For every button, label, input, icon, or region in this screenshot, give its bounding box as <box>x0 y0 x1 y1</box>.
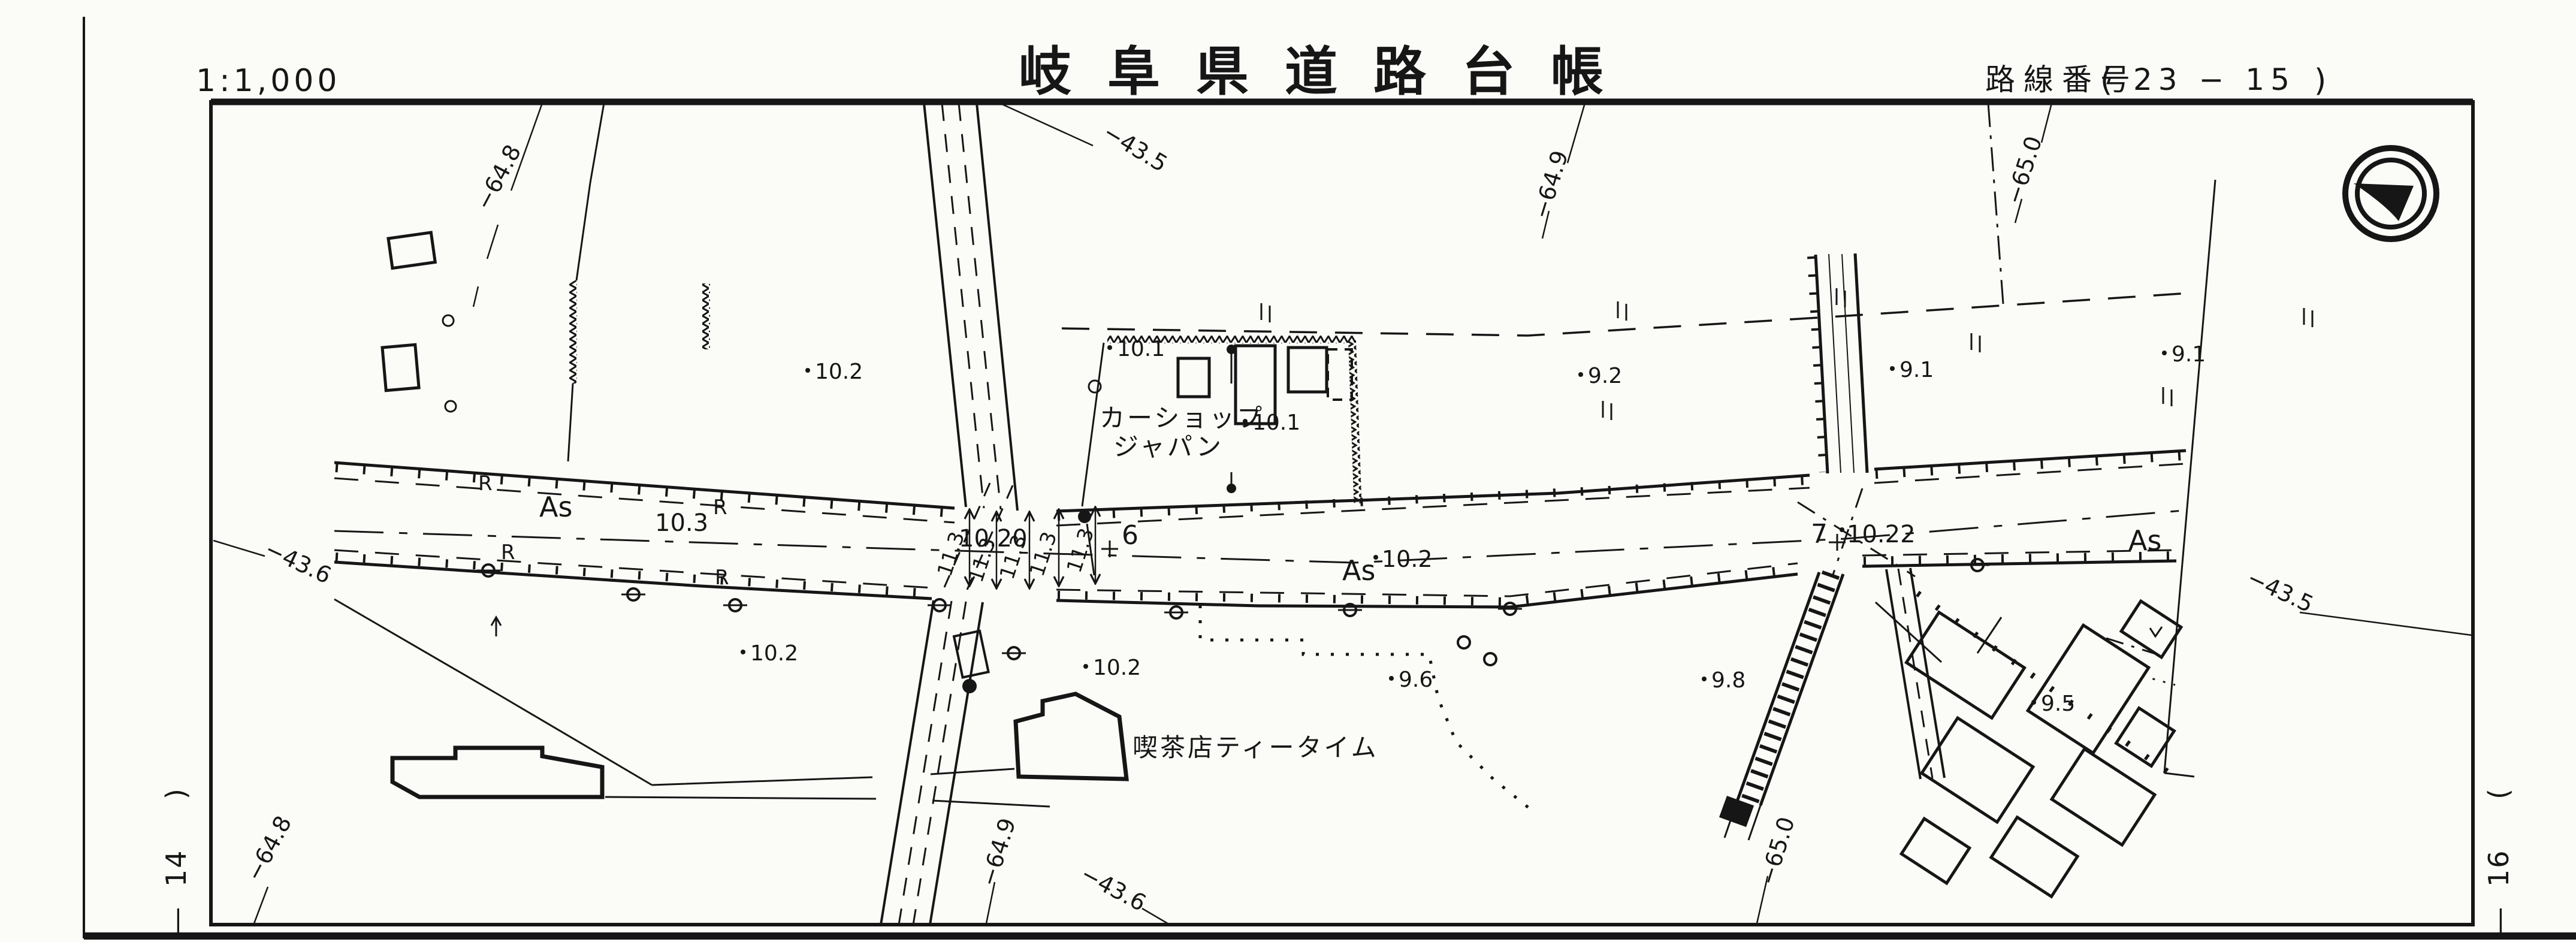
grid-label: −64.9 <box>1528 147 1574 222</box>
road-ledger-sheet: 1:1,000 岐阜県道路台帳 路線番号 ( 23 − 15 ) ― 14 ) … <box>0 0 2576 942</box>
place-labels: カーショップ ジャパン 喫茶店ティータイム <box>1100 403 1379 762</box>
utility-pole <box>1227 484 1236 493</box>
building <box>1901 819 1970 883</box>
grid-label: −43.5 <box>2243 564 2317 618</box>
edge-mark: R <box>713 496 727 520</box>
surface-label: As <box>2128 524 2161 557</box>
building <box>1906 612 2024 718</box>
well-symbol <box>1458 636 1470 648</box>
building <box>1991 817 2077 896</box>
building <box>1288 348 1327 392</box>
right-sheet-ref: ― 16 ( <box>2483 787 2515 936</box>
route-close-paren: ) <box>2314 63 2330 99</box>
road-symbols <box>476 510 1989 693</box>
building-dashed <box>1328 349 1352 400</box>
fence-line <box>1917 593 2169 773</box>
road-elevation: 10.2 <box>1382 546 1433 572</box>
grid-label: −43.6 <box>261 536 335 589</box>
car-shop-label-line1: カーショップ <box>1100 403 1264 433</box>
route-number-value: 23 − 15 <box>2133 62 2296 97</box>
header: 1:1,000 岐阜県道路台帳 路線番号 ( 23 − 15 ) <box>196 41 2330 102</box>
grid-label: −65.0 <box>2001 133 2047 207</box>
surface-label: As <box>539 491 572 523</box>
grid-label: −43.6 <box>1076 861 1150 917</box>
dash-dot-boundary <box>1988 103 2004 312</box>
sheet-bottom-band <box>84 932 2576 940</box>
coffee-shop-label: 喫茶店ティータイム <box>1133 733 1379 762</box>
road-elevation: 10.3 <box>655 509 708 537</box>
route-open-paren: ( <box>2100 63 2116 99</box>
grid-label: −64.8 <box>470 140 527 214</box>
station-number: 6 <box>1122 520 1138 551</box>
building <box>1922 718 2033 822</box>
fence-zigzag <box>569 280 577 384</box>
utility-pole <box>962 679 977 693</box>
spot-elevation: 10.2 <box>1093 656 1141 680</box>
left-structures <box>382 233 501 636</box>
sheet-frame <box>84 17 2576 940</box>
building <box>2052 749 2155 845</box>
station-number: 7 <box>1811 519 1828 549</box>
road-elevation: 10.20 <box>959 525 1028 552</box>
road-elevation: 10.22 <box>1847 521 1916 548</box>
bottom-left-building <box>392 748 602 797</box>
scale-label: 1:1,000 <box>196 63 340 99</box>
building-hatched <box>2028 625 2149 753</box>
north-arrow-icon <box>2345 148 2436 239</box>
grid-label: −64.9 <box>976 815 1021 889</box>
map-canvas: 1:1,000 岐阜県道路台帳 路線番号 ( 23 − 15 ) ― 14 ) … <box>0 0 2576 942</box>
grid-label: −65.0 <box>1754 814 1800 888</box>
spot-elevation: 10.2 <box>815 360 863 384</box>
left-sheet-ref: ― 14 ) <box>160 787 192 936</box>
spot-elevation: 9.6 <box>1399 668 1433 692</box>
utility-pole <box>1227 345 1236 354</box>
edge-mark: R <box>715 566 729 590</box>
edge-mark: R <box>501 541 515 564</box>
survey-area-edge <box>2164 180 2215 777</box>
canal-end-structure <box>1719 796 1754 827</box>
well-symbol <box>1484 653 1496 665</box>
sawtooth-boundary <box>1348 340 1361 503</box>
building <box>1178 358 1209 397</box>
spot-elevation: 10.2 <box>750 641 798 666</box>
building <box>388 233 435 268</box>
building-cluster <box>1876 593 2181 896</box>
grid-label: −43.5 <box>1098 119 1171 177</box>
edge-mark: R <box>478 472 493 496</box>
tree-symbol <box>491 617 501 636</box>
page-title: 岐阜県道路台帳 <box>1019 41 1639 102</box>
fence-zigzag <box>702 283 710 349</box>
spot-elevation: 9.8 <box>1711 668 1745 693</box>
check-symbol <box>2150 627 2162 636</box>
utility-pole <box>1078 510 1091 523</box>
spot-elevation: 9.1 <box>2172 342 2206 367</box>
coffee-shop-building <box>1016 694 1127 779</box>
adjacent-sheet-refs: ― 14 ) ― 16 ( <box>160 787 2515 936</box>
building <box>382 345 419 391</box>
spot-elevation: 9.5 <box>2041 692 2075 716</box>
spot-elevation: 9.1 <box>1899 358 1934 382</box>
grid-label: −64.8 <box>241 811 297 885</box>
spot-elevation: 9.2 <box>1588 364 1622 388</box>
dotted-boundary <box>1200 605 1532 810</box>
paddy-symbols <box>1261 288 2312 420</box>
surface-label: As <box>1342 554 1375 587</box>
spot-elevation: 10.1 <box>1117 337 1165 361</box>
car-shop-label-line2: ジャパン <box>1113 432 1224 461</box>
dashed-boundary <box>1062 294 2181 336</box>
